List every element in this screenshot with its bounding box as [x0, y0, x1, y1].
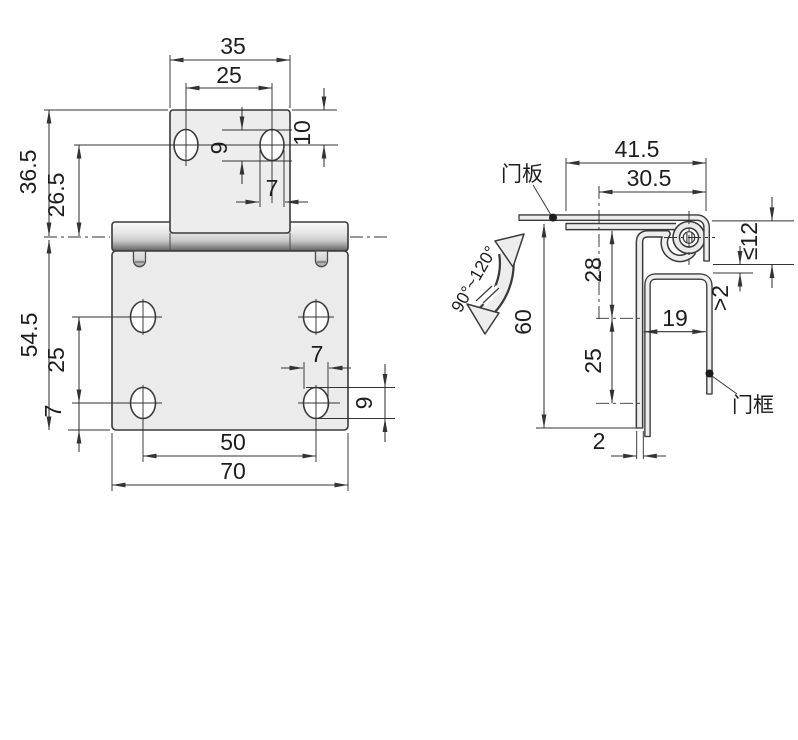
drawing-canvas: 35 25 10 9 7 36.5 26.5 54.5 25 7 7 9 50 …: [0, 0, 798, 740]
leader-line: [533, 185, 551, 215]
dim-slot-height-top: 9: [206, 142, 232, 155]
leader-dot: [706, 370, 714, 378]
dim-hole-plane-offset: 30.5: [627, 165, 672, 191]
dim-flange-depth: ≤12: [736, 222, 762, 260]
front-view: 35 25 10 9 7 36.5 26.5 54.5 25 7 7 9 50 …: [15, 33, 395, 491]
dim-clearance: >2: [707, 285, 733, 311]
dim-channel-width: 19: [662, 305, 688, 331]
dim-leaf-width: 41.5: [615, 136, 660, 162]
dim-slot-height-bottom: 9: [351, 397, 377, 410]
leader-line: [712, 376, 737, 394]
dim-tab-width: 35: [220, 33, 246, 59]
dim-slot-width-top: 7: [266, 175, 279, 201]
door-panel-label: 门板: [501, 163, 543, 186]
dim-hole-bottom-offset: 7: [40, 405, 66, 418]
dim-hole-top-offset: 10: [289, 120, 315, 146]
dim-tab-hole-spacing: 25: [216, 62, 242, 88]
dim-plate-hole-spacing-v: 25: [43, 347, 69, 373]
dim-hole-to-axis: 26.5: [43, 173, 69, 218]
locating-pin-left: [134, 251, 146, 267]
dim-first-hole-distance: 28: [580, 257, 606, 283]
side-view: 41.5 30.5 ≤12 >2 28 25 60 19 2 门板 门框 90°…: [447, 136, 794, 459]
door-frame-outline: [648, 277, 710, 437]
door-frame-label: 门框: [732, 394, 774, 417]
dim-plate-height: 54.5: [16, 313, 42, 358]
dim-hole-spacing: 25: [580, 348, 606, 374]
dim-leaf-length: 60: [510, 309, 536, 335]
locating-pin-right: [316, 251, 328, 267]
door-frame-profile: [648, 277, 710, 437]
dim-plate-hole-spacing-h: 50: [220, 429, 246, 455]
dim-slot-width-bottom: 7: [311, 341, 324, 367]
dim-plate-width: 70: [220, 458, 246, 484]
leader-dot: [549, 214, 557, 222]
dim-tab-height-to-axis: 36.5: [15, 150, 41, 195]
dim-sheet-thickness: 2: [593, 428, 606, 454]
technical-drawing: 35 25 10 9 7 36.5 26.5 54.5 25 7 7 9 50 …: [0, 0, 798, 740]
